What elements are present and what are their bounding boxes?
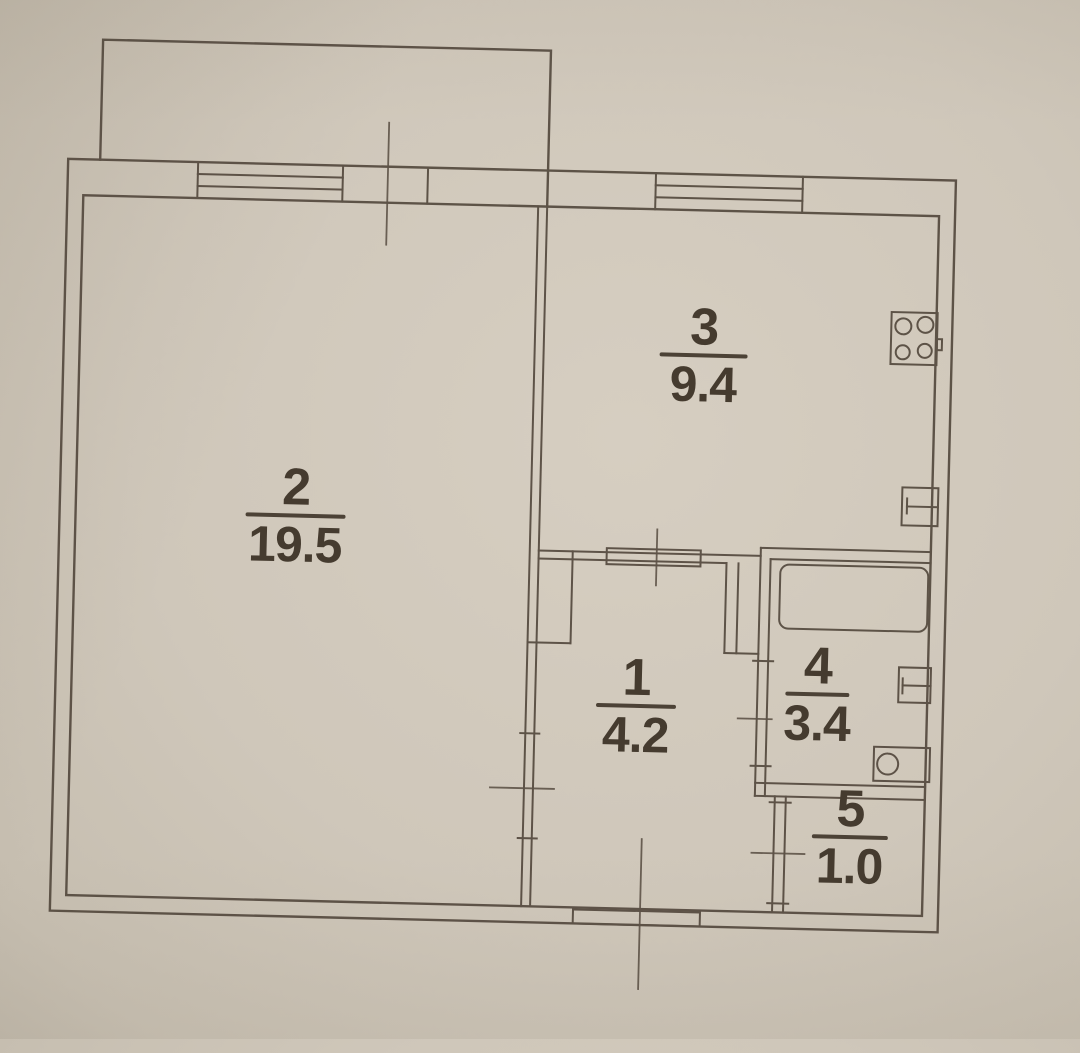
room-3-label: 3 9.4 [610, 302, 796, 409]
window-icon [655, 173, 803, 213]
partition-room2 [516, 206, 552, 906]
room-number: 3 [612, 302, 797, 352]
room-5-label: 5 1.0 [757, 784, 943, 891]
room-area: 3.4 [724, 698, 909, 748]
room-number: 4 [725, 641, 910, 691]
window-icon [197, 162, 343, 202]
room-area: 1.0 [757, 841, 942, 891]
floor-plan: 2 19.5 3 9.4 1 4.2 4 3.4 5 1.0 [0, 0, 1080, 1053]
room-1-label: 1 4.2 [543, 653, 729, 760]
bathtub-icon [779, 564, 929, 632]
photographed-floor-plan-page: { "plan": { "rooms": [ { "number": "2", … [0, 0, 1080, 1039]
room-4-label: 4 3.4 [724, 641, 910, 748]
room-number: 1 [544, 653, 729, 703]
room-area: 9.4 [610, 359, 795, 409]
room-area: 4.2 [543, 710, 728, 760]
room-2-label: 2 19.5 [202, 462, 388, 569]
room-number: 5 [758, 784, 943, 834]
dimension-axis-lines [368, 123, 822, 993]
floor-plan-drawing [0, 0, 1080, 1053]
door-opening-icon [606, 548, 700, 566]
washbasin-icon [873, 747, 930, 782]
wall-joints [427, 168, 428, 204]
room-area: 19.5 [202, 519, 387, 569]
room-number: 2 [204, 462, 389, 512]
balcony-outline [99, 40, 551, 207]
